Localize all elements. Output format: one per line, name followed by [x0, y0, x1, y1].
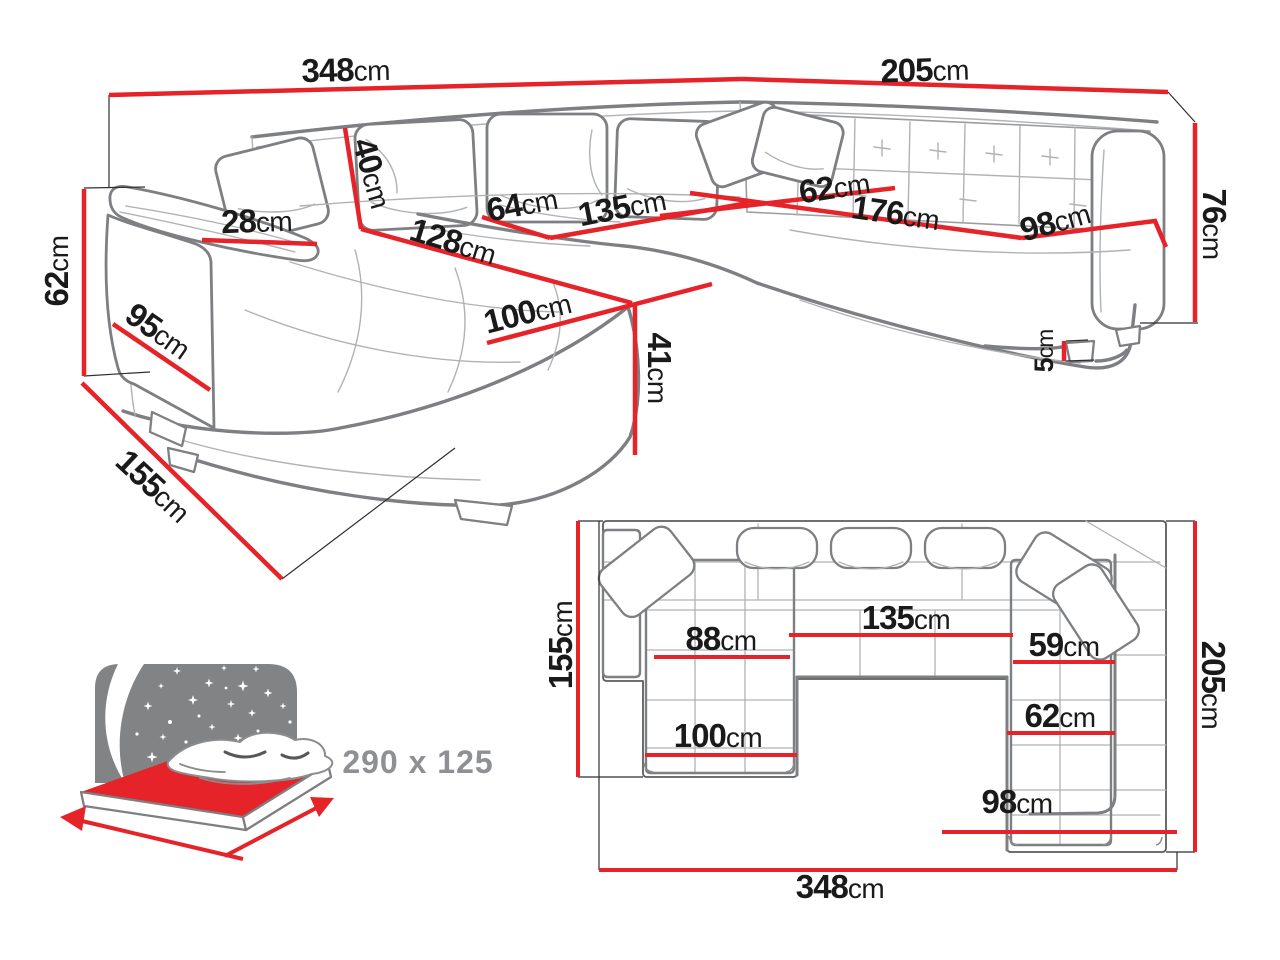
plan-label-98: 98cm — [981, 783, 1052, 820]
sleeping-size-label: 290 x 125 — [342, 744, 493, 780]
diagram-canvas: 348cm 205cm 62cm 95cm 155cm 28cm 40cm 12… — [0, 0, 1280, 960]
sleeping-function-icon: 290 x 125 — [60, 664, 494, 859]
label-arm-height: 62cm — [38, 235, 75, 306]
plan-label-left-depth: 155cm — [542, 601, 579, 689]
label-armrest-width: 28cm — [220, 201, 292, 240]
dim-line-348 — [109, 79, 742, 95]
plan-label-88: 88cm — [685, 620, 756, 657]
plan-label-100: 100cm — [674, 717, 762, 754]
plan-label-135: 135cm — [862, 599, 950, 636]
plan-label-62: 62cm — [1024, 697, 1095, 734]
label-right-width: 205cm — [880, 49, 970, 89]
plan-label-right-depth: 205cm — [1195, 641, 1232, 729]
label-seat-height: 41cm — [641, 332, 678, 403]
perspective-view: 348cm 205cm 62cm 95cm 155cm 28cm 40cm 12… — [38, 49, 1233, 579]
label-leg-height: 5cm — [1029, 330, 1059, 373]
label-total-width: 348cm — [301, 50, 390, 89]
dim-line-155 — [82, 383, 282, 579]
plan-view: 155cm 88cm 135cm 59cm 62cm 100cm 98cm 20… — [542, 521, 1232, 905]
plan-label-59: 59cm — [1028, 626, 1099, 663]
sofa-dimension-diagram: 348cm 205cm 62cm 95cm 155cm 28cm 40cm 12… — [0, 0, 1280, 960]
label-back-height: 76cm — [1196, 188, 1233, 259]
plan-label-total-width: 348cm — [796, 868, 884, 905]
